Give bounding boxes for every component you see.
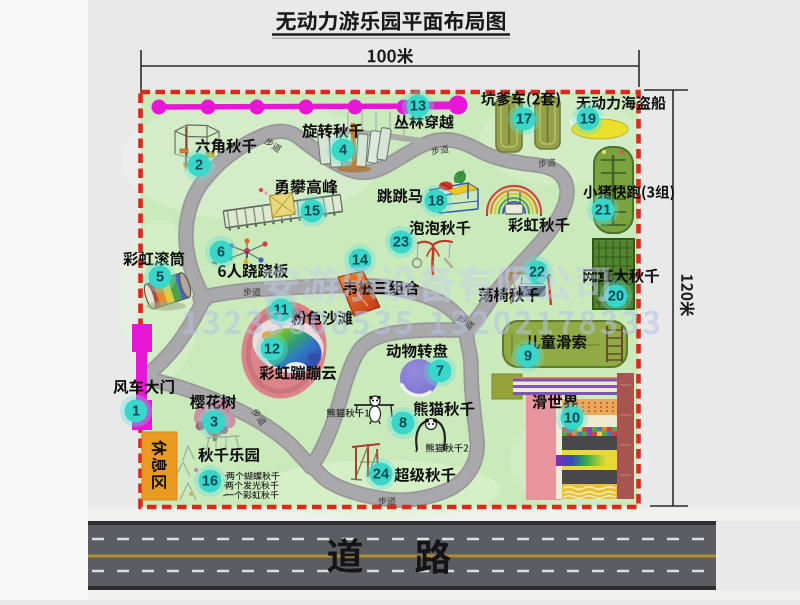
svg-text:21: 21 (595, 203, 611, 219)
svg-text:9: 9 (524, 349, 532, 365)
svg-text:2: 2 (195, 158, 203, 174)
svg-text:1: 1 (132, 404, 140, 420)
svg-text:6: 6 (217, 245, 225, 261)
svg-text:5: 5 (156, 270, 164, 286)
svg-text:16: 16 (202, 474, 218, 490)
svg-text:18: 18 (428, 194, 444, 210)
svg-text:7: 7 (436, 364, 444, 380)
svg-text:3: 3 (210, 415, 218, 431)
svg-text:20: 20 (608, 289, 624, 305)
svg-text:24: 24 (373, 467, 389, 483)
svg-text:10: 10 (564, 411, 580, 427)
svg-text:13: 13 (410, 99, 426, 115)
svg-text:8: 8 (399, 416, 407, 432)
svg-text:23: 23 (393, 235, 409, 251)
svg-text:4: 4 (339, 143, 347, 159)
svg-text:17: 17 (516, 112, 532, 128)
svg-text:19: 19 (580, 112, 596, 128)
svg-text:14: 14 (352, 253, 368, 269)
svg-text:12: 12 (264, 342, 280, 358)
svg-text:15: 15 (304, 204, 320, 220)
